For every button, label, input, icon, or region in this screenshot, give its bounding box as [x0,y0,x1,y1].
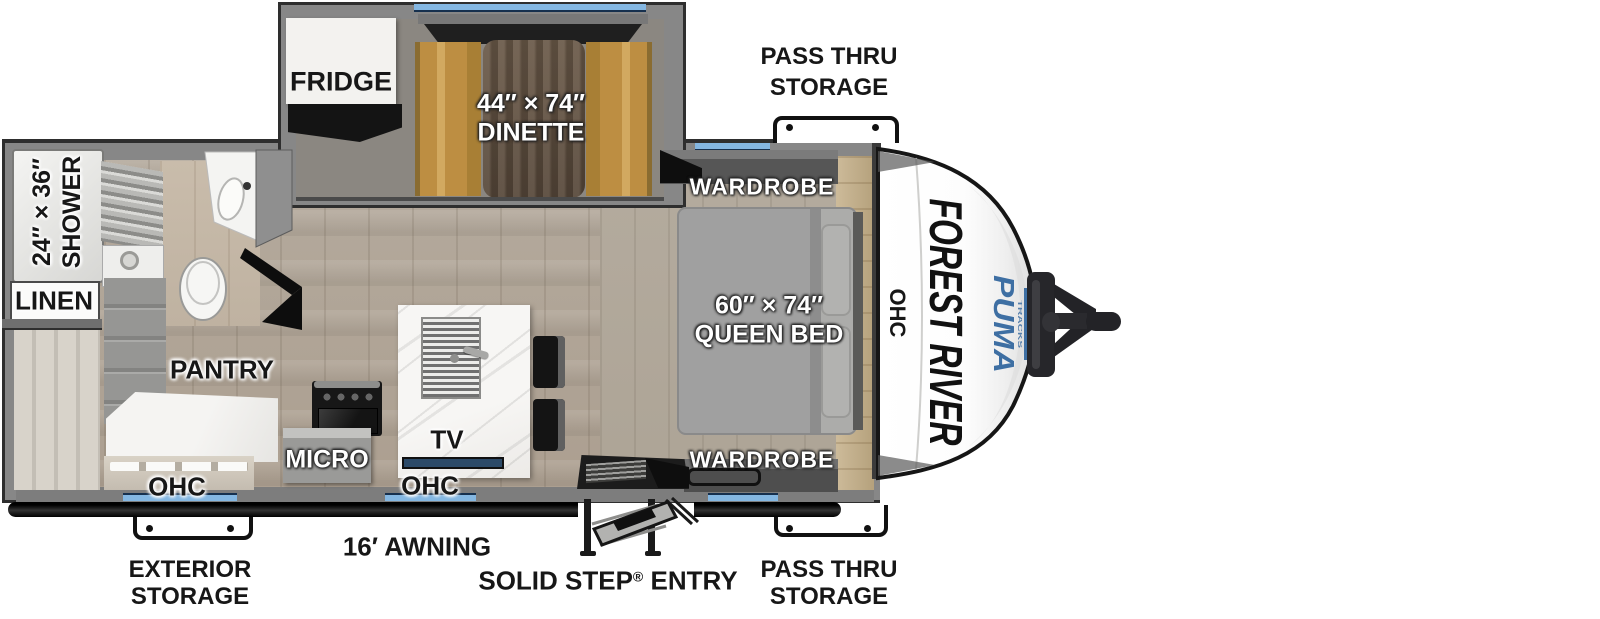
svg-text:FOREST RIVER: FOREST RIVER [920,199,972,446]
svg-text:PUMA: PUMA [987,275,1019,373]
svg-text:TRACKS: TRACKS [1016,300,1022,348]
